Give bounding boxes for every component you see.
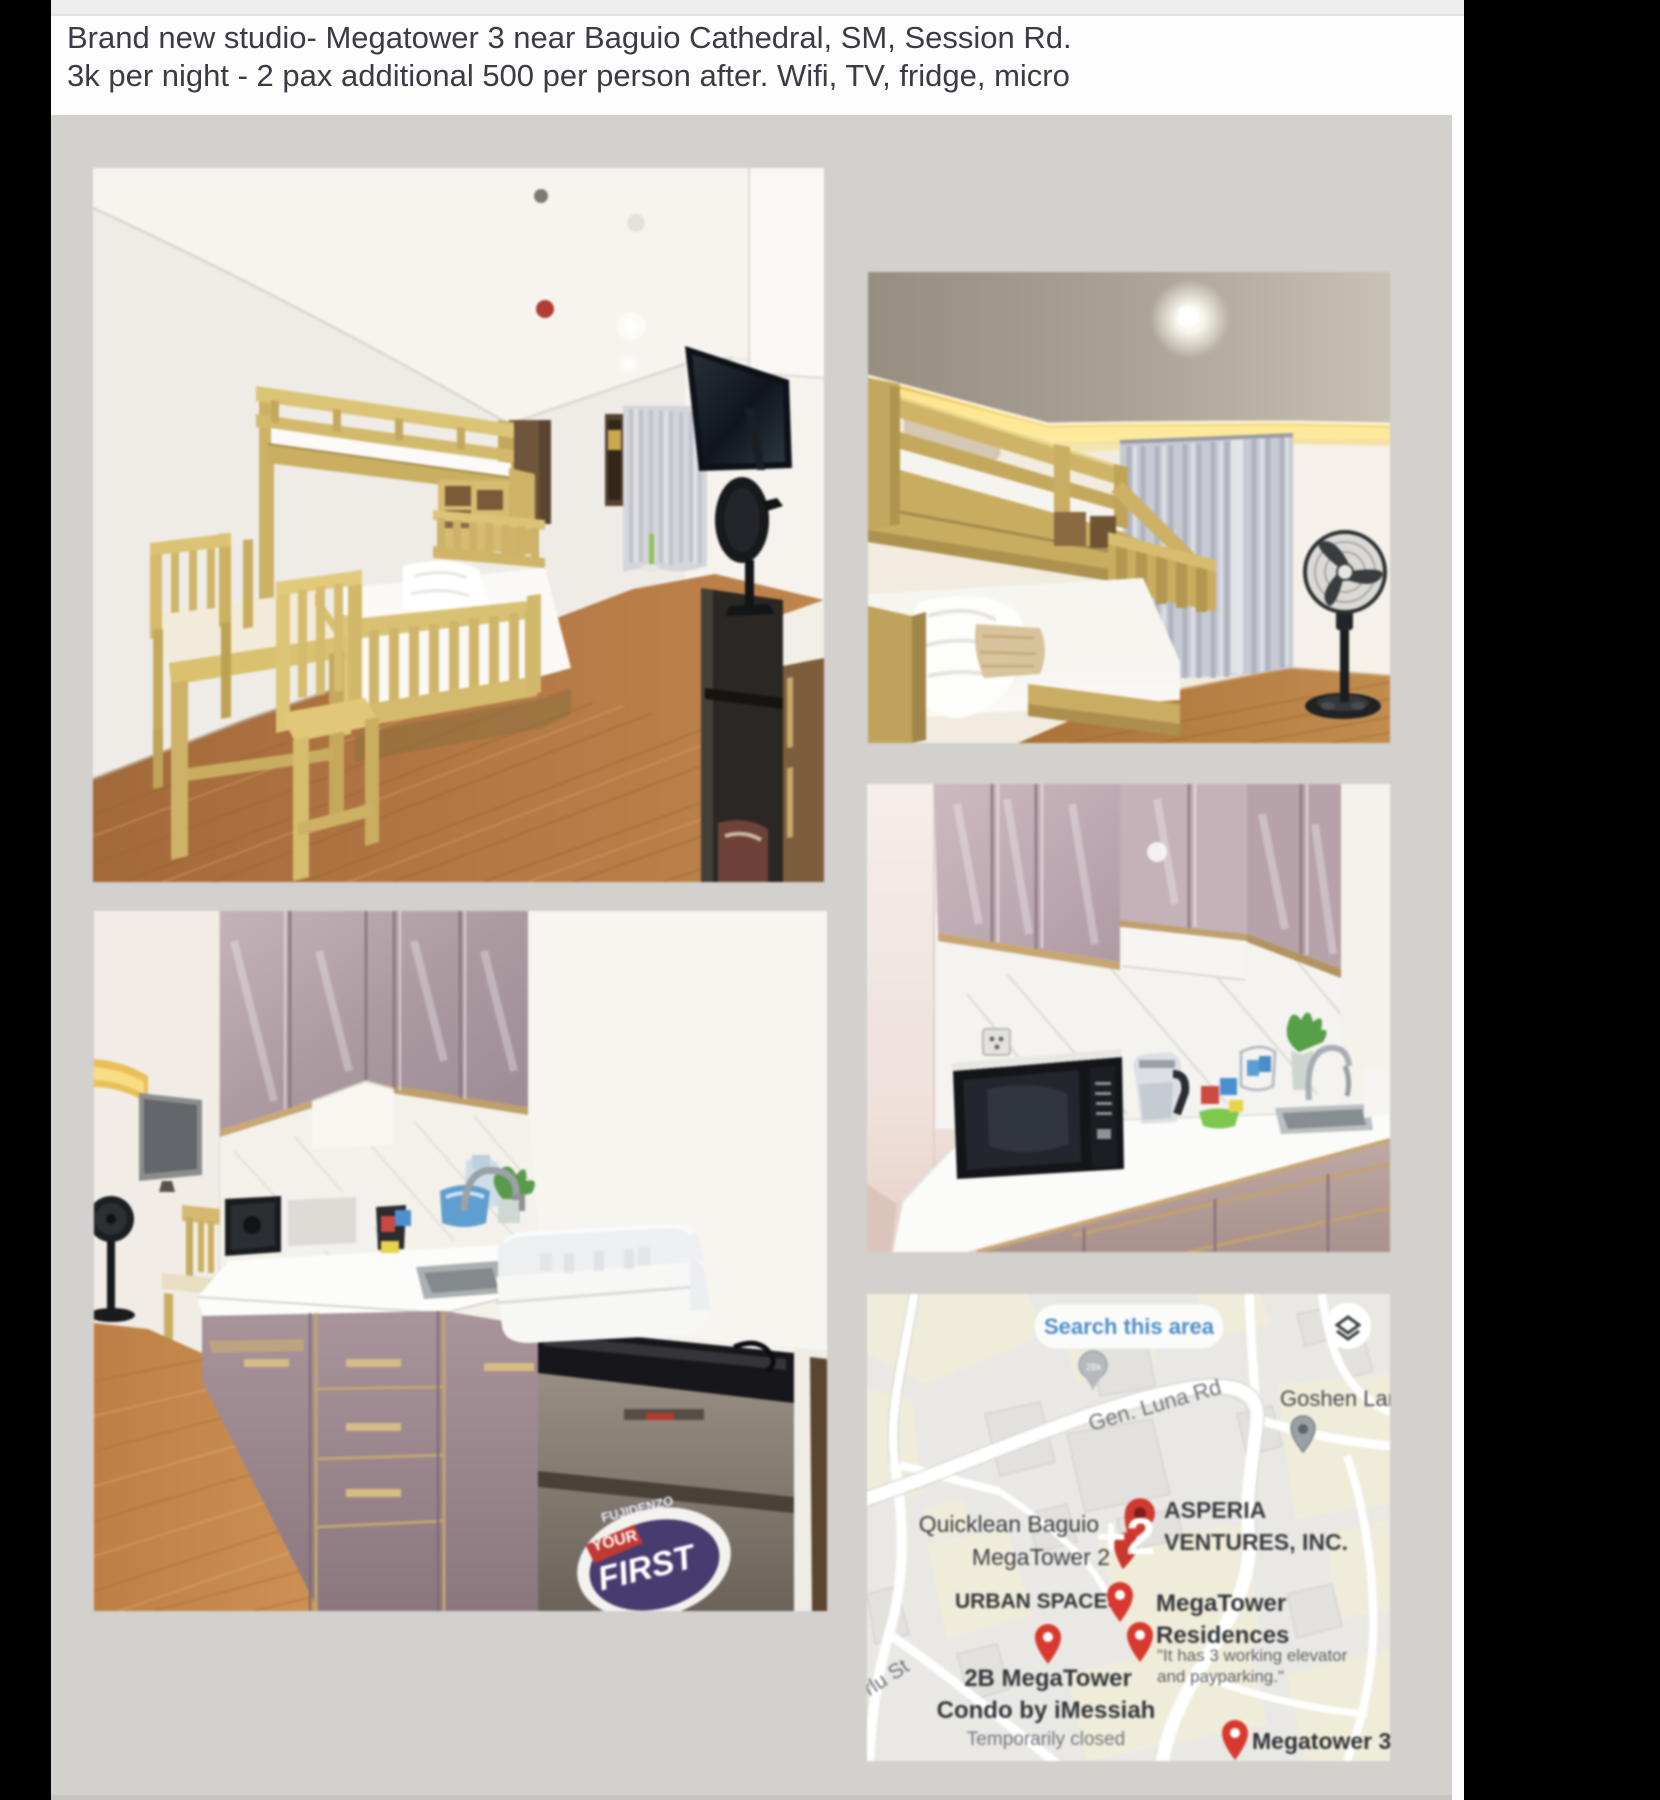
svg-text:MegaTower 2: MegaTower 2 [972, 1544, 1110, 1570]
svg-text:and payparking.": and payparking." [1157, 1667, 1284, 1686]
svg-text:Search this area: Search this area [1044, 1314, 1215, 1339]
svg-text:MegaTower: MegaTower [1156, 1590, 1286, 1617]
svg-text:Temporarily closed: Temporarily closed [967, 1729, 1125, 1750]
svg-text:URBAN SPACES: URBAN SPACES [955, 1590, 1121, 1613]
svg-text:"It has 3 working elevator: "It has 3 working elevator [1157, 1646, 1348, 1665]
svg-text:Goshen Lan: Goshen Lan [1280, 1386, 1390, 1411]
svg-text:2Bk: 2Bk [1086, 1362, 1102, 1372]
svg-text:VENTURES, INC.: VENTURES, INC. [1164, 1529, 1348, 1555]
svg-text:Megatower 3: Megatower 3 [1252, 1728, 1390, 1754]
svg-text:Condo by iMessiah: Condo by iMessiah [937, 1697, 1156, 1724]
svg-text:2B MegaTower: 2B MegaTower [964, 1665, 1132, 1692]
svg-text:Residences: Residences [1156, 1622, 1289, 1649]
svg-text:ASPERIA: ASPERIA [1164, 1497, 1266, 1523]
svg-text:Quicklean Baguio: Quicklean Baguio [919, 1511, 1099, 1537]
